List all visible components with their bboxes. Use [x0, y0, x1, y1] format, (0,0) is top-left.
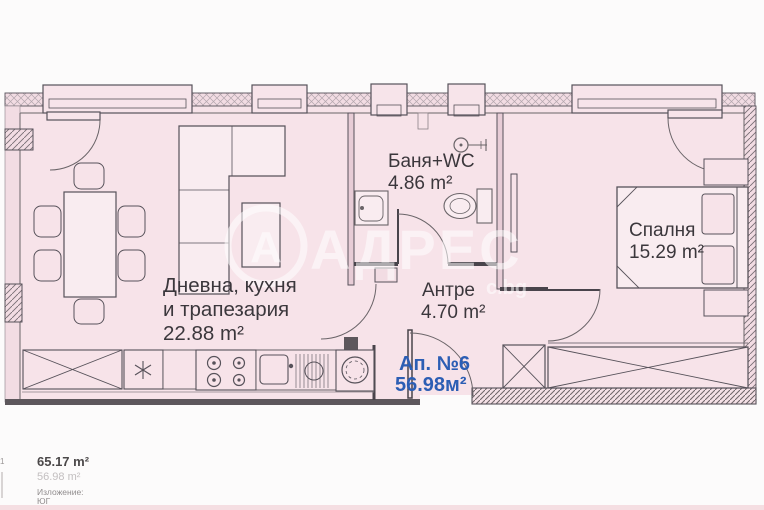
floorplan-page: А АДРЕС с.bg Дневна, кухня и трапезария …: [0, 0, 764, 510]
footer-net-area: 56.98 m²: [37, 471, 81, 483]
bottom-hatched-wall: [472, 388, 756, 404]
nightstand: [704, 159, 748, 185]
label-living-line1: Дневна, кухня: [163, 274, 297, 297]
label-apartment-number: Ап. №6: [399, 353, 470, 375]
washing-machine: [336, 350, 374, 391]
label-bedroom-area: 15.29 m²: [629, 242, 704, 263]
label-living-area: 22.88 m²: [163, 322, 244, 345]
closet-box: [503, 345, 545, 388]
edge-fragment-text: х1: [0, 457, 5, 466]
watermark-brand: АДРЕС: [310, 218, 523, 281]
label-bathroom-area: 4.86 m²: [388, 173, 452, 194]
base-cabinet: [23, 350, 122, 389]
fridge: [124, 350, 163, 389]
bottom-strip: [0, 505, 764, 510]
kitchen-counter: [22, 350, 374, 392]
window-living-small: [252, 85, 307, 113]
watermark-suffix: с.bg: [486, 277, 527, 299]
label-hallway-area: 4.70 m²: [421, 302, 485, 323]
window-bath-2: [448, 84, 485, 116]
label-hallway: Антре: [422, 280, 475, 301]
dining-table: [64, 192, 116, 297]
label-bathroom: Баня+WC: [388, 151, 475, 172]
kitchen-sink: [256, 350, 336, 390]
label-apartment-area: 56.98м²: [395, 374, 467, 396]
label-bedroom: Спалня: [629, 220, 695, 241]
adres-logo-letter: А: [250, 223, 282, 272]
stove: [196, 350, 256, 390]
windows: [43, 84, 722, 116]
label-living-line2: и трапезария: [163, 298, 289, 321]
footer-total-area: 65.17 m²: [37, 454, 90, 469]
nightstand: [704, 290, 748, 316]
window-living-large: [43, 85, 192, 113]
duct: [418, 113, 428, 129]
counter-section: [163, 350, 196, 389]
floorplan-drawing: А АДРЕС с.bg Дневна, кухня и трапезария …: [0, 0, 764, 510]
wall-column: [5, 129, 33, 150]
window-bath-1: [371, 84, 407, 116]
wardrobe: [548, 343, 748, 388]
wall-column: [5, 284, 22, 322]
footer-exposure-value: ЮГ: [37, 496, 51, 506]
window-bedroom: [572, 85, 722, 113]
